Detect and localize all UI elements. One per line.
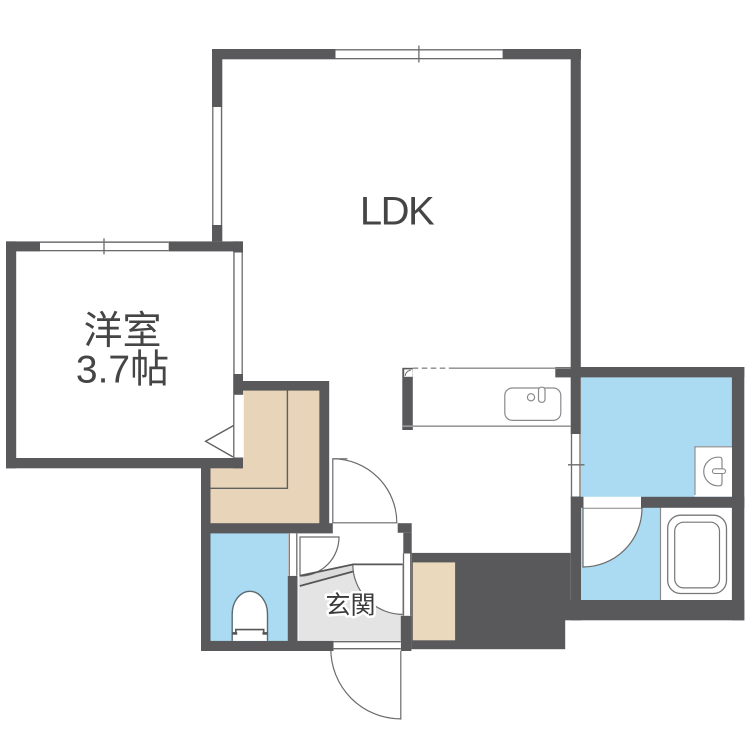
svg-text:3.7帖: 3.7帖	[76, 349, 169, 392]
svg-text:洋室: 洋室	[83, 310, 161, 353]
svg-text:LDK: LDK	[360, 190, 435, 234]
svg-text:玄関: 玄関	[325, 592, 375, 620]
